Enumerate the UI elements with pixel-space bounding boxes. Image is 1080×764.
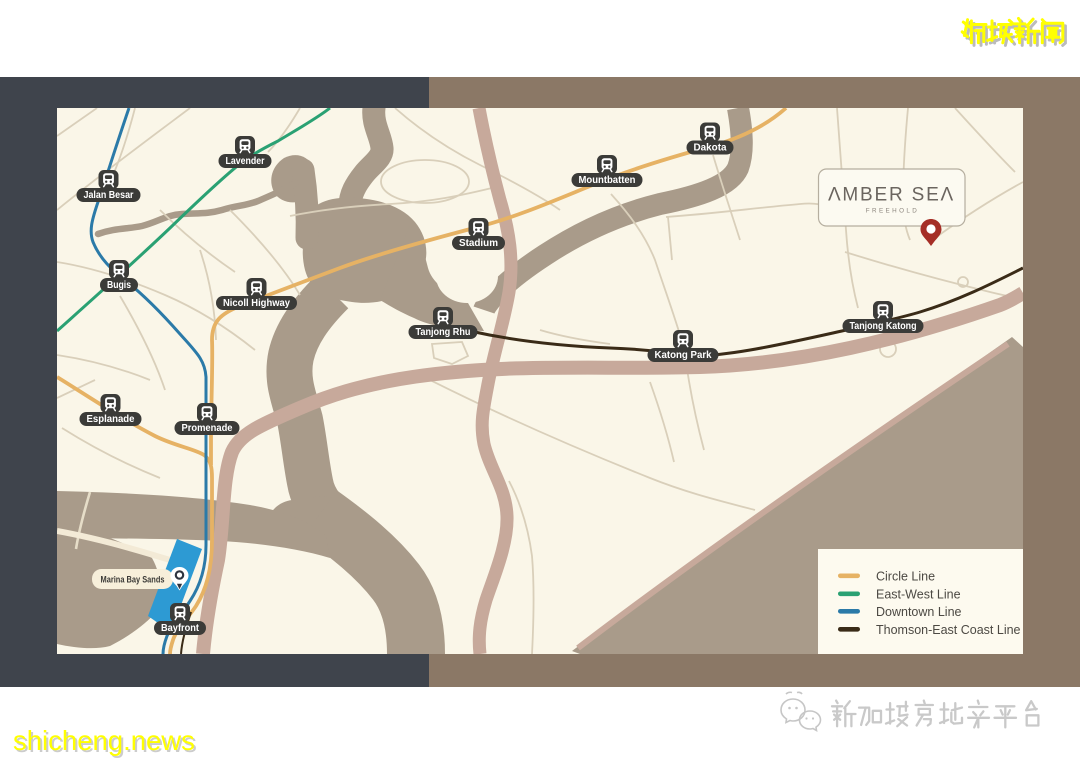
svg-text:Thomson-East Coast Line: Thomson-East Coast Line (876, 623, 1021, 637)
svg-text:Marina Bay Sands: Marina Bay Sands (101, 575, 165, 586)
svg-text:shicheng.news: shicheng.news (13, 725, 195, 756)
svg-text:Tanjong Rhu: Tanjong Rhu (416, 327, 471, 338)
svg-text:ΛMBER SEΛ: ΛMBER SEΛ (828, 185, 955, 206)
svg-text:Lavender: Lavender (226, 156, 265, 167)
svg-text:FREEHOLD: FREEHOLD (866, 208, 920, 215)
svg-text:Downtown Line: Downtown Line (876, 605, 962, 619)
svg-text:Circle Line: Circle Line (876, 570, 935, 584)
svg-text:Bugis: Bugis (107, 280, 131, 291)
svg-text:Esplanade: Esplanade (87, 414, 135, 425)
svg-text:Katong Park: Katong Park (655, 350, 712, 361)
svg-text:Bayfront: Bayfront (161, 623, 200, 634)
svg-text:Tanjong Katong: Tanjong Katong (850, 321, 917, 332)
svg-text:East-West Line: East-West Line (876, 588, 961, 602)
svg-text:Jalan Besar: Jalan Besar (84, 190, 134, 201)
svg-text:Mountbatten: Mountbatten (579, 175, 636, 186)
svg-text:Nicoll Highway: Nicoll Highway (223, 298, 290, 309)
svg-text:Dakota: Dakota (694, 143, 727, 154)
svg-text:Stadium: Stadium (459, 238, 498, 249)
svg-text:Promenade: Promenade (182, 423, 233, 434)
